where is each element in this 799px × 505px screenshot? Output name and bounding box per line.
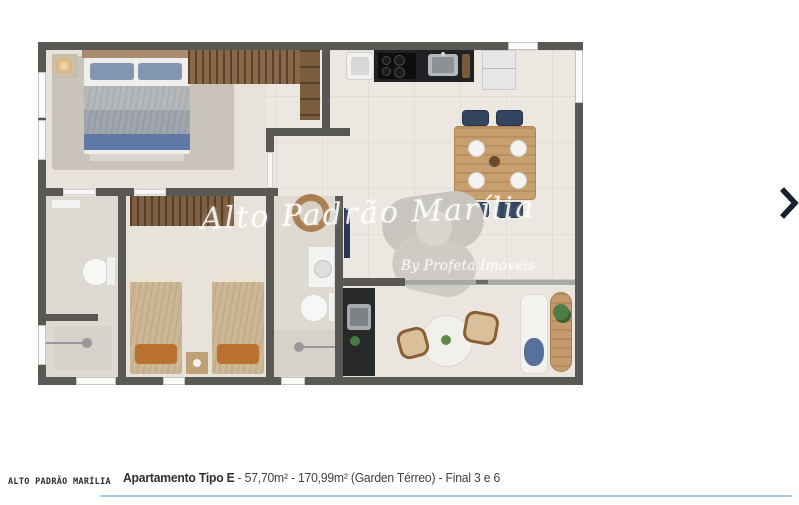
dining-chair-4	[496, 202, 523, 218]
window-kitchen	[575, 50, 583, 103]
shower-right-floor	[274, 330, 335, 376]
burner-1	[382, 56, 391, 65]
caption-underline	[100, 495, 792, 497]
window	[281, 377, 305, 385]
fridge-divider	[482, 68, 516, 69]
single-bed-left-sheet	[130, 270, 182, 282]
door-bedroom2	[134, 189, 166, 195]
bed-headboard	[82, 50, 192, 58]
floorplan-image: Alto Padrão Marília By Profeta Imóveis	[38, 42, 583, 385]
closet-bedroom2	[130, 196, 234, 226]
door-master	[63, 189, 96, 195]
burner-2	[394, 55, 405, 66]
shower-right-head	[294, 342, 304, 352]
window	[76, 377, 116, 385]
plate-2	[510, 140, 527, 157]
plate-1	[468, 140, 485, 157]
balcony-sink-basin	[350, 308, 368, 326]
window	[38, 325, 46, 365]
wall	[322, 50, 330, 128]
bed-blue-runner	[84, 134, 190, 150]
table-centerpiece	[489, 156, 500, 167]
wall	[266, 128, 350, 136]
wall	[46, 188, 63, 196]
bath-left-shelf	[52, 200, 80, 208]
wall	[335, 196, 343, 377]
wall	[266, 136, 274, 152]
wardrobe-cabinet	[300, 50, 320, 120]
single-bed-right-sheet	[212, 270, 264, 282]
pillow-orange-left	[135, 344, 177, 364]
sliding-door-handle	[476, 280, 488, 284]
window	[38, 120, 46, 160]
window	[38, 72, 46, 118]
wall-shower-divider	[46, 314, 98, 321]
bench-blue-cushion	[524, 338, 544, 366]
balcony-table-plant	[441, 335, 451, 345]
wall	[118, 196, 126, 377]
pillow-blue-right	[138, 63, 182, 80]
burner-4	[394, 67, 405, 78]
door-hall	[267, 152, 273, 188]
burner-3	[382, 67, 391, 76]
wall	[266, 188, 274, 377]
kitchen-faucet	[441, 52, 445, 56]
sofa-cushion	[416, 210, 452, 246]
toilet-right-tank	[328, 292, 335, 322]
carousel-next-button[interactable]	[777, 184, 799, 224]
shower-left-head	[82, 338, 92, 348]
sliding-glass-door	[405, 279, 575, 285]
lamp-left	[56, 58, 72, 74]
shower-left-floor	[54, 326, 112, 370]
toilet-left-tank	[106, 256, 116, 286]
dining-chair-2	[496, 110, 523, 126]
gallery-page: { "floorplan": { "watermark_line1": "Alt…	[0, 0, 799, 505]
shower-right-arm	[302, 346, 335, 348]
bed-throw	[84, 110, 190, 134]
pillow-orange-right	[217, 344, 259, 364]
plate-4	[510, 172, 527, 189]
pillow-blue-left	[90, 63, 134, 80]
cutting-board	[462, 54, 470, 78]
tv-panel	[344, 208, 350, 258]
armchair-cushion	[299, 201, 323, 225]
unit-name: Apartamento Tipo E	[123, 471, 234, 485]
closet-hanging-rail	[188, 50, 300, 84]
candle	[193, 359, 201, 367]
caption-text: Apartamento Tipo E - 57,70m² - 170,99m² …	[123, 471, 500, 485]
wall-balcony	[343, 278, 405, 286]
shower-left-arm	[46, 342, 86, 344]
wall	[96, 188, 134, 196]
unit-details: - 57,70m² - 170,99m² (Garden Térreo) - F…	[234, 471, 500, 485]
bed-foot-bench	[90, 154, 184, 161]
fridge	[482, 50, 516, 90]
window	[163, 377, 185, 385]
dining-chair-1	[462, 110, 489, 126]
vanity-right-basin	[314, 260, 332, 278]
chevron-right-icon	[778, 185, 799, 221]
plate-3	[468, 172, 485, 189]
kitchen-sink-basin	[432, 57, 454, 73]
laundry-tank-basin	[351, 57, 369, 75]
window	[508, 42, 538, 50]
footer-brand-label: ALTO PADRÃO MARÍLIA	[8, 477, 111, 487]
wall	[166, 188, 278, 196]
rattan-chair-right	[461, 309, 500, 346]
balcony-plant-small	[350, 336, 360, 346]
panel-plant	[553, 304, 569, 320]
balcony-counter	[343, 288, 375, 376]
toilet-right-bowl	[300, 294, 328, 322]
